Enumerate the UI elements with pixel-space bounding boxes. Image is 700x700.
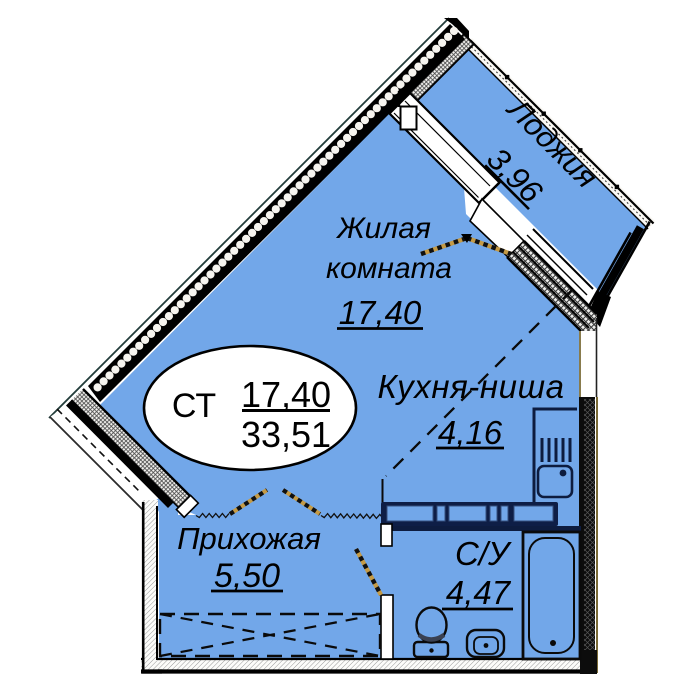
svg-text:СТ: СТ <box>172 387 216 425</box>
svg-text:4,47: 4,47 <box>446 574 512 611</box>
svg-text:Прихожая: Прихожая <box>177 521 321 556</box>
svg-text:Жилая: Жилая <box>335 212 431 245</box>
svg-text:4,16: 4,16 <box>438 414 503 451</box>
svg-text:Кухня-ниша: Кухня-ниша <box>377 368 564 405</box>
svg-text:5,50: 5,50 <box>214 557 280 595</box>
svg-text:17,40: 17,40 <box>241 374 331 415</box>
svg-text:17,40: 17,40 <box>339 294 422 331</box>
svg-text:комната: комната <box>326 252 452 285</box>
svg-text:33,51: 33,51 <box>241 414 331 455</box>
svg-text:С/У: С/У <box>455 535 512 572</box>
